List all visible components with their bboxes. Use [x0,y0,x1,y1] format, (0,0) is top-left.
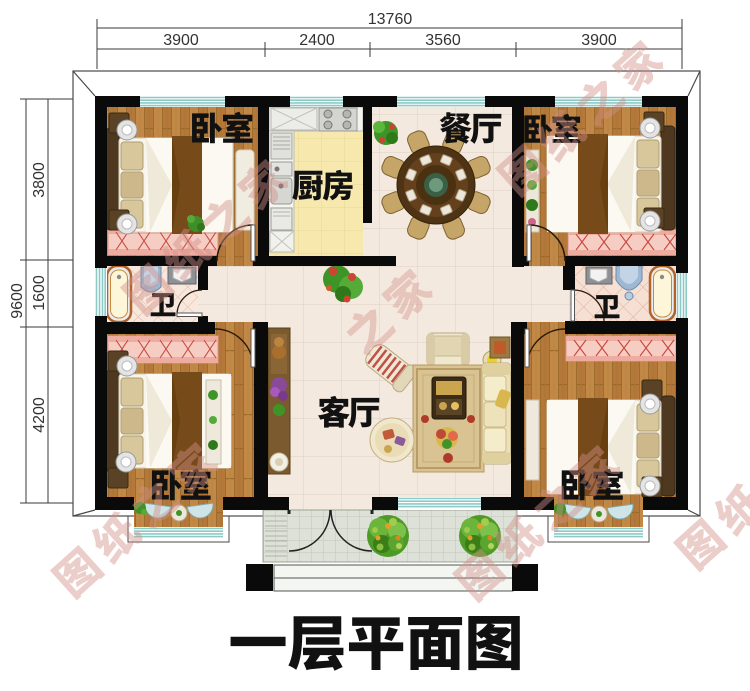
svg-text:3800: 3800 [31,162,48,198]
svg-text:1600: 1600 [31,275,48,311]
svg-text:3900: 3900 [163,32,199,49]
svg-text:13760: 13760 [368,11,413,28]
svg-text:9600: 9600 [9,283,26,319]
svg-text:3560: 3560 [425,32,461,49]
svg-text:3900: 3900 [581,32,617,49]
svg-text:2400: 2400 [299,32,335,49]
svg-text:4200: 4200 [31,397,48,433]
